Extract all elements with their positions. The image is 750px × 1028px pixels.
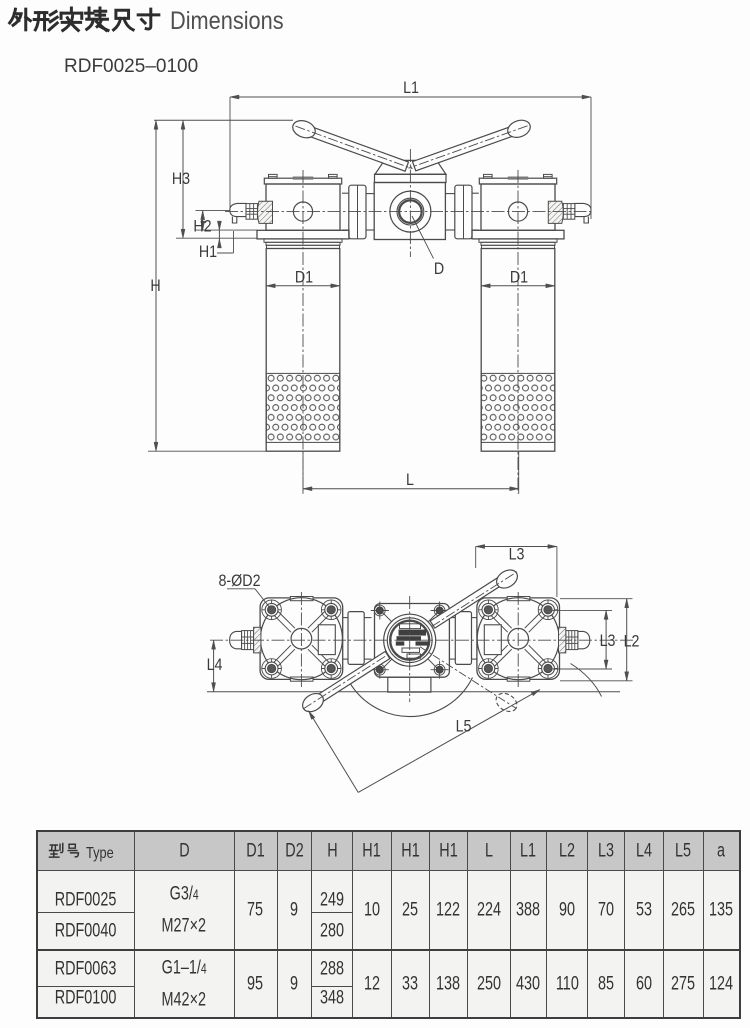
svg-text:L5: L5	[456, 717, 472, 735]
svg-text:H: H	[150, 277, 160, 295]
svg-text:L: L	[406, 471, 414, 489]
svg-text:L3: L3	[509, 545, 525, 563]
svg-text:H3: H3	[172, 170, 190, 188]
svg-text:8-ØD2: 8-ØD2	[218, 572, 260, 590]
svg-text:D1: D1	[295, 268, 313, 286]
svg-text:D: D	[434, 260, 444, 278]
svg-text:L1: L1	[403, 79, 419, 97]
svg-text:H1: H1	[199, 243, 217, 261]
svg-text:D1: D1	[510, 268, 528, 286]
svg-text:L3: L3	[600, 632, 616, 650]
svg-text:L2: L2	[624, 632, 640, 650]
svg-text:L4: L4	[207, 656, 223, 674]
svg-text:H2: H2	[193, 217, 211, 235]
